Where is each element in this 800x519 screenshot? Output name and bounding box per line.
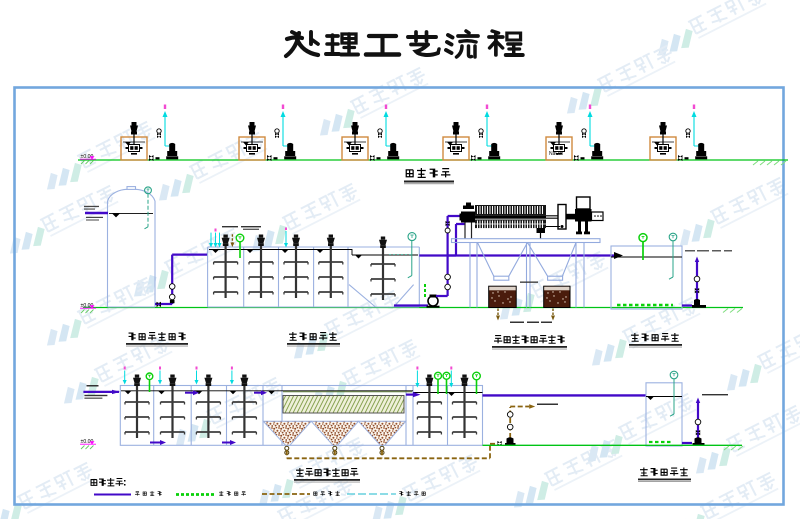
svg-text:NaOH: NaOH: [549, 151, 563, 157]
